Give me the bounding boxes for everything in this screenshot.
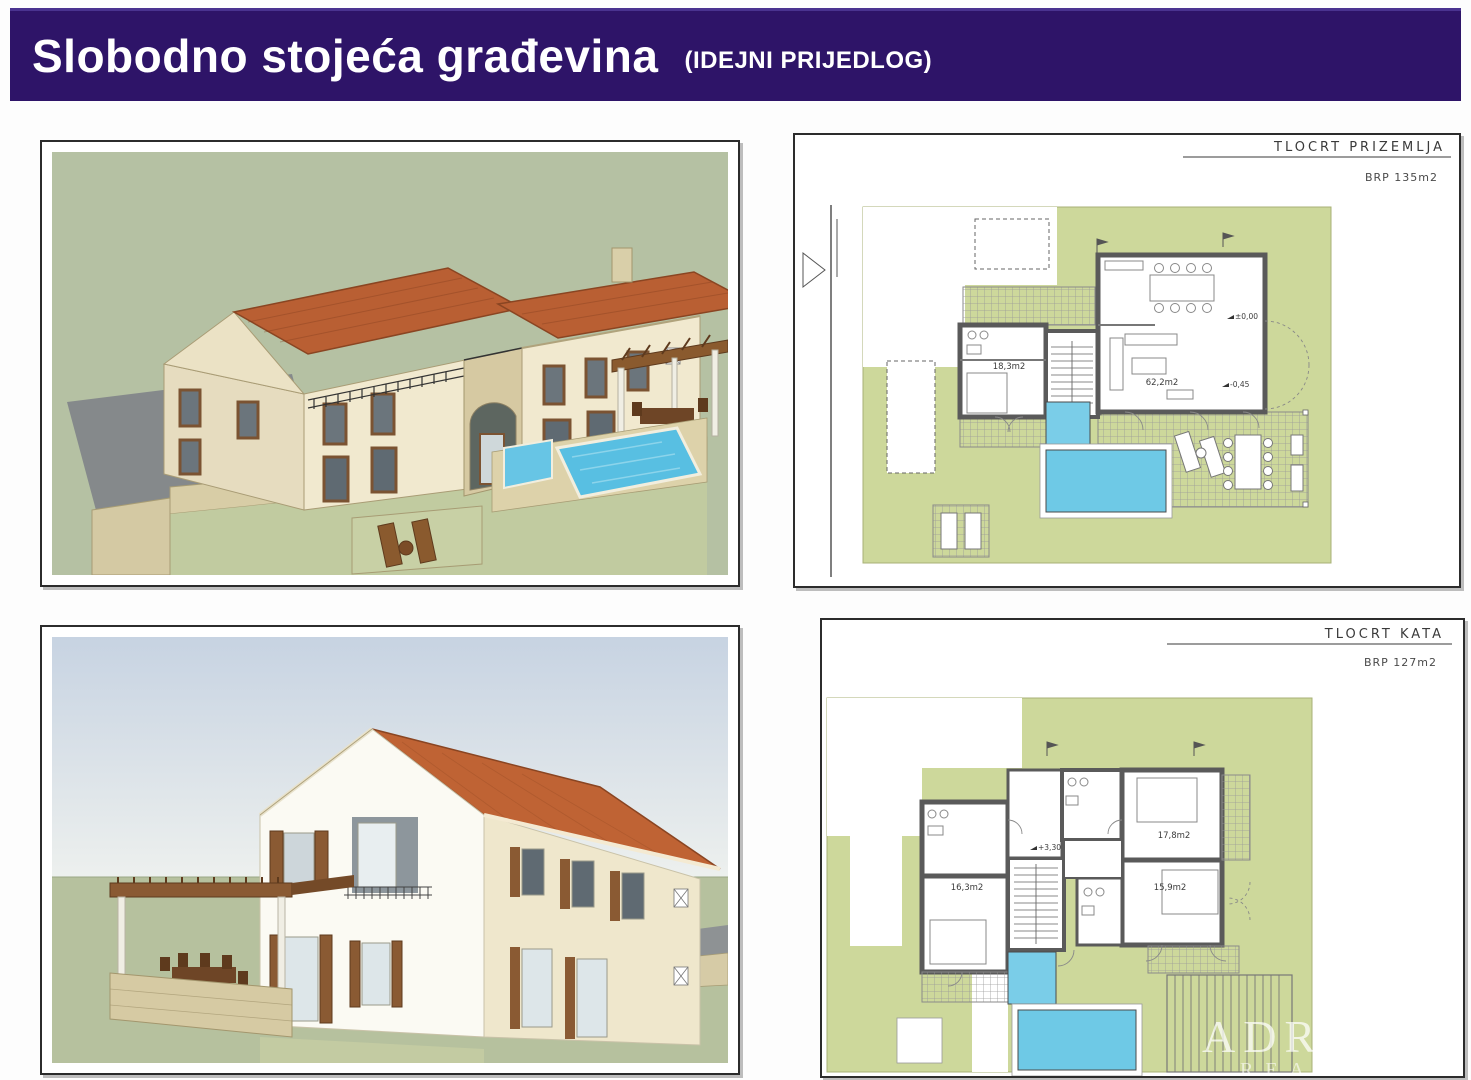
courtyard-loungers: [352, 506, 482, 574]
ground-plan-brp: BRP 135m2: [1365, 171, 1438, 184]
header-bar: Slobodno stojeća građevina (IDEJNI PRIJE…: [10, 8, 1461, 101]
watermark: ADRIATIC REAL ESTATE: [1202, 1011, 1463, 1076]
level-label-floor: +3,30: [1038, 843, 1061, 852]
room-label-bedroom-ground: 18,3m2: [993, 362, 1026, 372]
upper-plan-brp: BRP 127m2: [1364, 656, 1437, 669]
page-title: Slobodno stojeća građevina: [32, 29, 658, 83]
upper-floor-plan: TLOCRT KATA BRP 127m2: [822, 620, 1463, 1076]
watermark-line1: ADRIATIC: [1202, 1011, 1463, 1062]
ground-plan-title: TLOCRT PRIZEMLJA: [1273, 140, 1445, 155]
room-label-bedroom-ne: 17,8m2: [1158, 831, 1191, 841]
upper-plan-title: TLOCRT KATA: [1324, 627, 1444, 642]
room-label-bedroom-w: 16,3m2: [951, 883, 984, 893]
page-subtitle: (IDEJNI PRIJEDLOG): [684, 47, 932, 75]
plan-header-upper: TLOCRT KATA BRP 127m2: [1167, 627, 1452, 669]
watermark-line2: REAL ESTATE: [1240, 1059, 1463, 1076]
room-label-bedroom-e: 15,9m2: [1154, 883, 1187, 893]
panel-render-rear: [40, 625, 740, 1075]
slide-page: Slobodno stojeća građevina (IDEJNI PRIJE…: [0, 0, 1471, 1080]
exterior-render-rear: [52, 637, 728, 1063]
panel-plan-upper: TLOCRT KATA BRP 127m2: [820, 618, 1465, 1078]
panel-render-front: [40, 140, 740, 587]
level-label-terrace: -0,45: [1230, 380, 1250, 389]
panel-plan-ground: TLOCRT PRIZEMLJA BRP 135m2: [793, 133, 1461, 588]
level-label-zero: ±0,00: [1235, 312, 1258, 321]
site-boundary: [803, 205, 837, 577]
room-label-living: 62,2m2: [1146, 378, 1179, 388]
plan-header-ground: TLOCRT PRIZEMLJA BRP 135m2: [1183, 140, 1451, 184]
exterior-render-front: [52, 152, 728, 575]
ground-floor-plan: TLOCRT PRIZEMLJA BRP 135m2: [795, 135, 1459, 586]
